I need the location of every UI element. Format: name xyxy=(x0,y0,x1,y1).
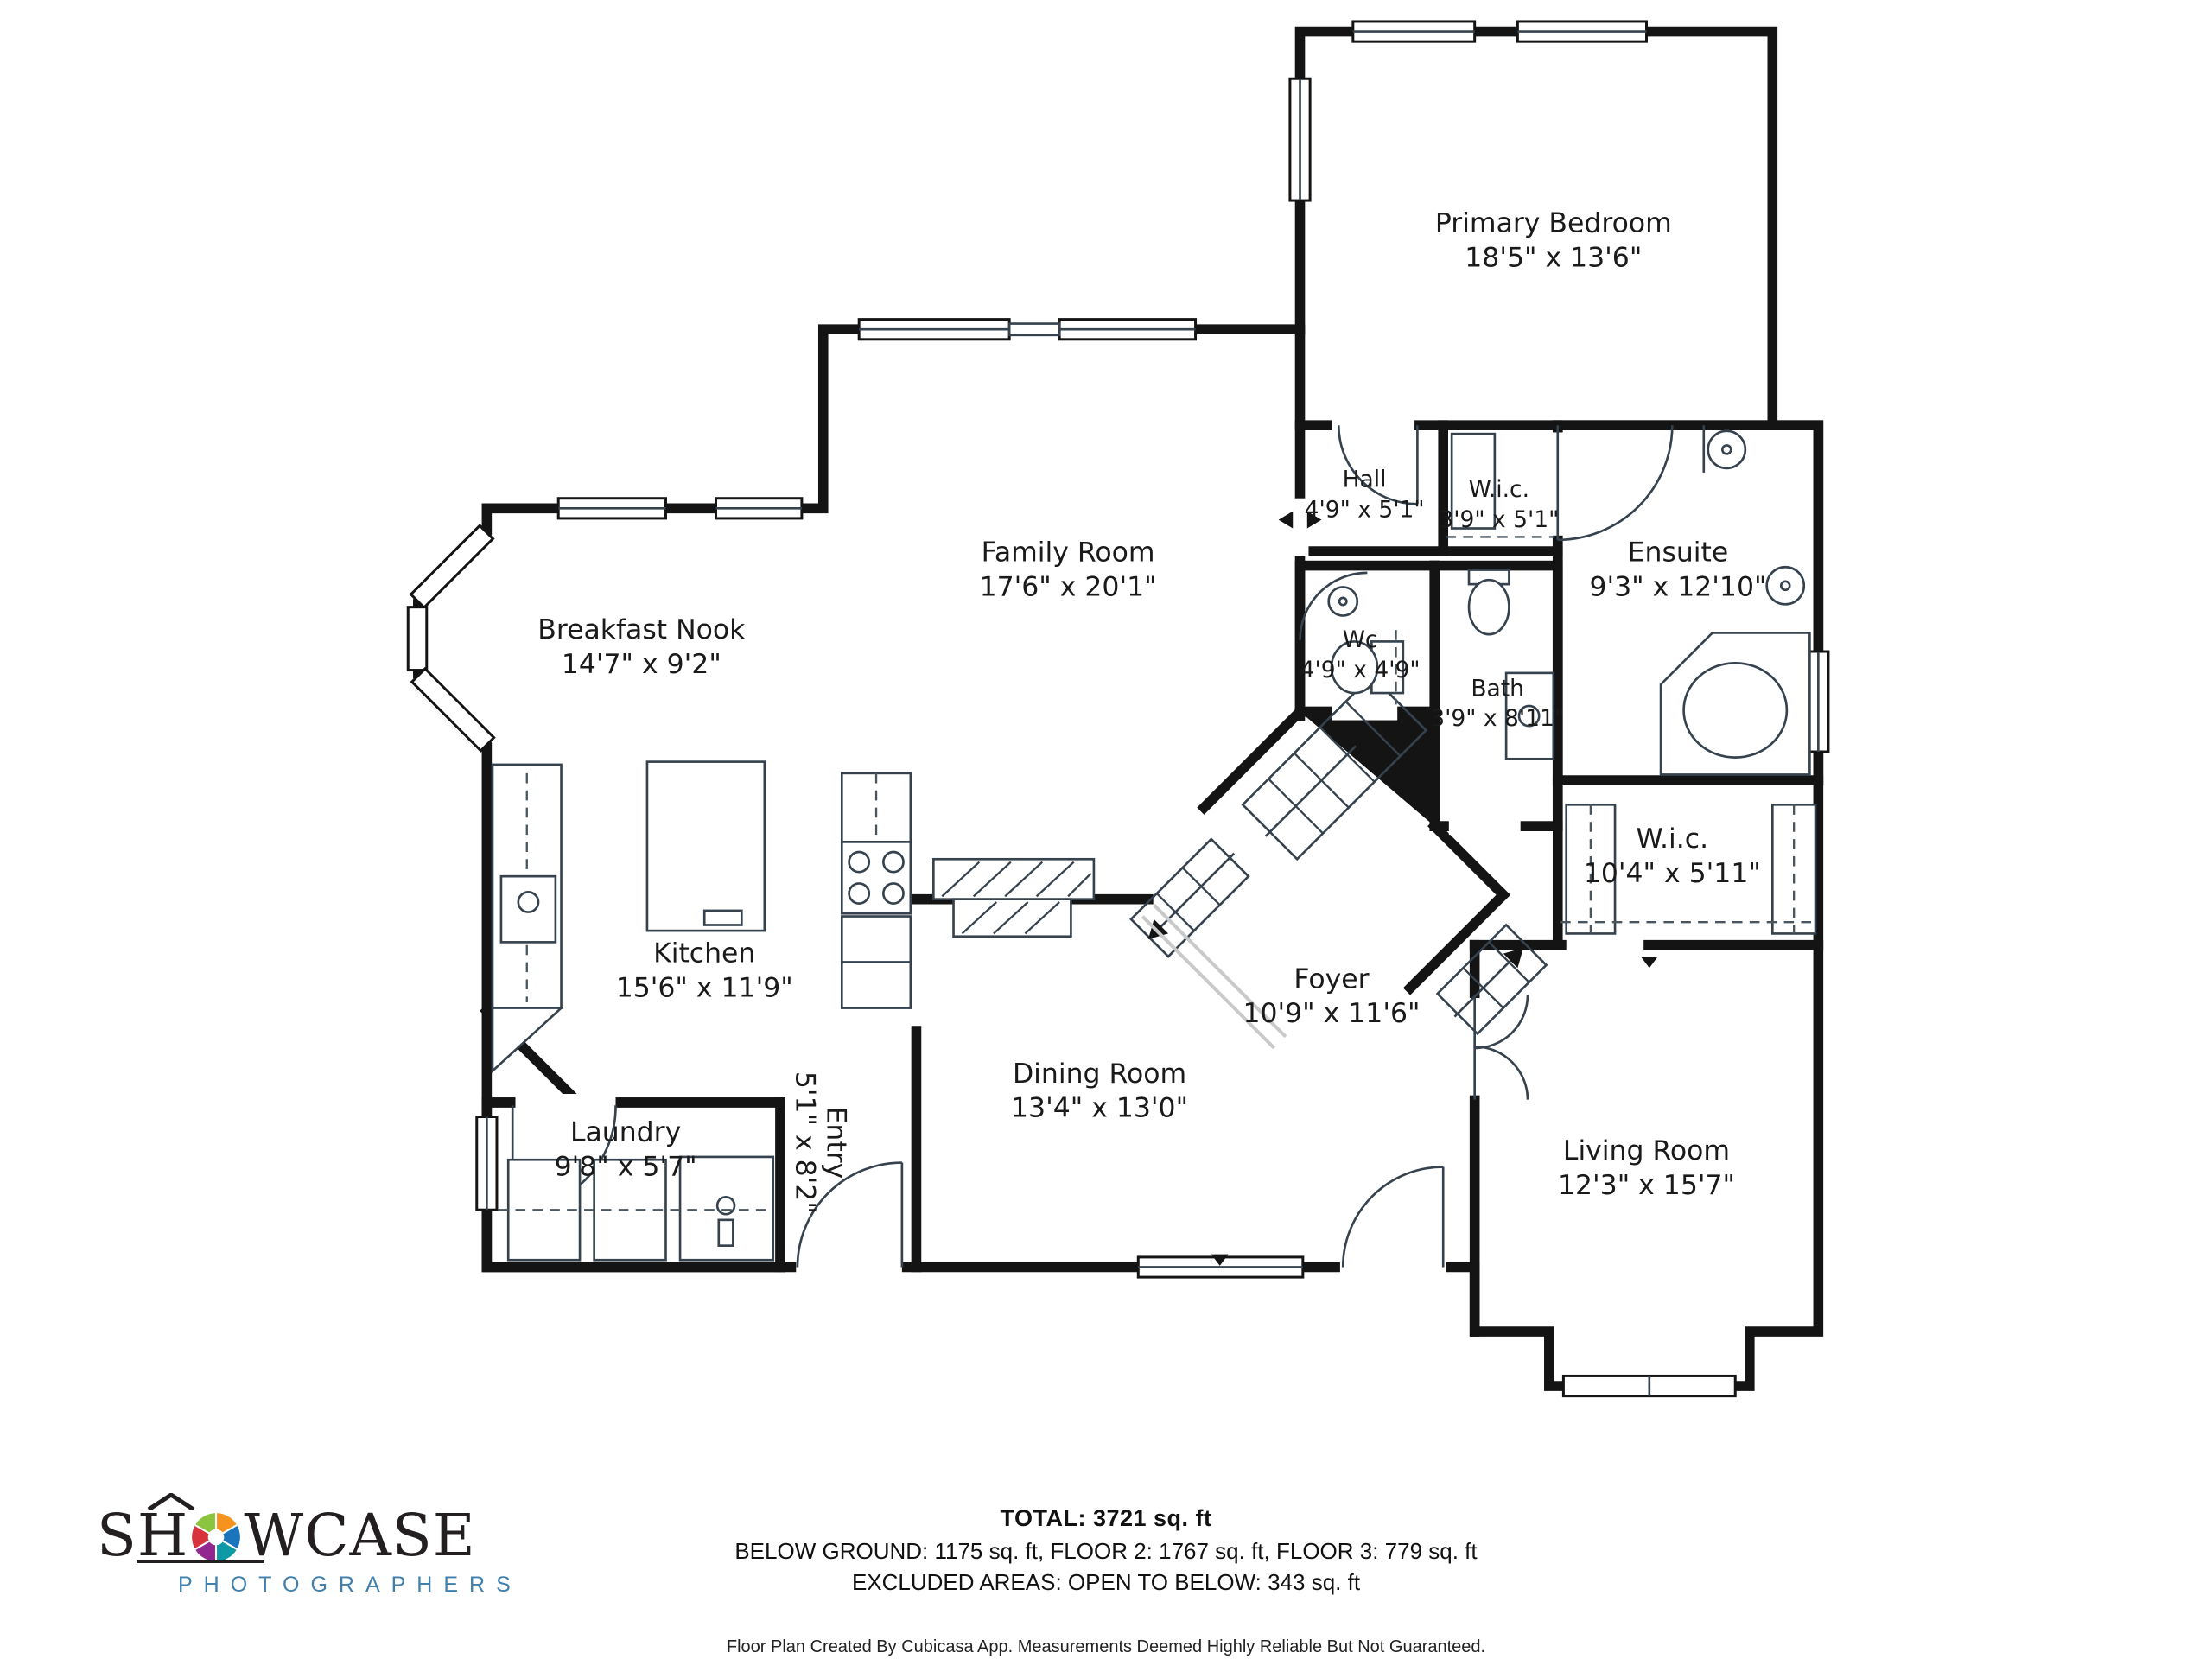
primary-bedroom-window xyxy=(1290,79,1310,200)
foyer-door xyxy=(1343,1167,1443,1268)
room-label-entry-group: Entry 5'1" x 8'2" xyxy=(789,1071,851,1214)
room-label-bath: Bath xyxy=(1471,675,1524,702)
bay-window xyxy=(411,525,493,607)
room-dims-primary-bedroom: 18'5" x 13'6" xyxy=(1465,242,1642,273)
family-room-window xyxy=(859,320,1009,340)
room-dims-living-room: 12'3" x 15'7" xyxy=(1558,1170,1735,1201)
excluded-areas-text: EXCLUDED AREAS: OPEN TO BELOW: 343 sq. f… xyxy=(0,1569,2212,1596)
sink-icon xyxy=(1329,587,1357,615)
room-dims-hall: 4'9" x 5'1" xyxy=(1305,496,1425,523)
disclaimer-text: Floor Plan Created By Cubicasa App. Meas… xyxy=(0,1637,2212,1657)
room-dims-entry: 5'1" x 8'2" xyxy=(789,1071,820,1214)
room-label-laundry: Laundry xyxy=(570,1117,681,1148)
floor-plan: Primary Bedroom 18'5" x 13'6" Hall 4'9" … xyxy=(0,0,2212,1503)
room-label-family-room: Family Room xyxy=(982,537,1155,569)
ensuite-door xyxy=(1558,425,1673,540)
room-dims-wic-large: 10'4" x 5'11" xyxy=(1584,858,1761,889)
room-dims-ensuite: 9'3" x 12'10" xyxy=(1589,571,1766,602)
sill xyxy=(1009,324,1059,335)
room-label-entry: Entry xyxy=(821,1106,852,1179)
sink-icon xyxy=(501,876,556,942)
toilet-icon xyxy=(1469,570,1509,635)
room-dims-family-room: 17'6" x 20'1" xyxy=(980,571,1157,602)
room-dims-laundry: 9'8" x 5'7" xyxy=(555,1151,697,1182)
floor-areas-text: BELOW GROUND: 1175 sq. ft, FLOOR 2: 1767… xyxy=(0,1538,2212,1565)
kitchen-counter xyxy=(493,765,562,1071)
laundry-window xyxy=(477,1117,497,1211)
primary-bedroom-window xyxy=(1517,22,1646,41)
primary-bedroom-window xyxy=(1353,22,1475,41)
fridge-icon xyxy=(842,917,911,1008)
bay-window xyxy=(412,669,494,751)
footer: TOTAL: 3721 sq. ft BELOW GROUND: 1175 sq… xyxy=(0,1505,2212,1657)
room-label-ensuite: Ensuite xyxy=(1628,537,1729,569)
living-room-bay-window xyxy=(1563,1376,1735,1395)
room-dims-dining-room: 13'4" x 13'0" xyxy=(1011,1093,1188,1124)
room-label-wic-small: W.i.c. xyxy=(1469,476,1529,503)
bay-window xyxy=(408,607,427,671)
room-label-foyer: Foyer xyxy=(1294,963,1369,995)
room-dims-breakfast-nook: 14'7" x 9'2" xyxy=(562,649,721,680)
room-dims-wic-small: 3'9" x 5'1" xyxy=(1439,506,1559,533)
room-label-hall: Hall xyxy=(1343,466,1387,493)
breakfast-nook-window xyxy=(715,499,801,518)
bathtub-icon xyxy=(1661,632,1809,774)
family-room-window xyxy=(1059,320,1195,340)
cooktop-icon xyxy=(842,773,911,913)
breakfast-nook-window xyxy=(558,499,665,518)
room-label-wic-large: W.i.c. xyxy=(1637,823,1709,855)
room-label-living-room: Living Room xyxy=(1563,1135,1730,1166)
room-dims-foyer: 10'9" x 11'6" xyxy=(1243,998,1420,1029)
room-label-breakfast-nook: Breakfast Nook xyxy=(537,614,746,645)
kitchen-island xyxy=(647,762,765,931)
room-label-dining-room: Dining Room xyxy=(1013,1058,1186,1090)
floor-plan-svg: Primary Bedroom 18'5" x 13'6" Hall 4'9" … xyxy=(0,0,2212,1503)
room-label-wc: Wc xyxy=(1343,626,1378,653)
ensuite-window xyxy=(1808,652,1828,752)
room-label-kitchen: Kitchen xyxy=(653,938,755,969)
room-label-primary-bedroom: Primary Bedroom xyxy=(1435,208,1672,239)
room-dims-kitchen: 15'6" x 11'9" xyxy=(616,972,793,1003)
total-area-text: TOTAL: 3721 sq. ft xyxy=(0,1505,2212,1532)
fireplace-icon xyxy=(933,859,1286,1048)
room-dims-bath: 3'9" x 8'11" xyxy=(1430,705,1565,732)
room-dims-wc: 4'9" x 4'9" xyxy=(1300,657,1421,683)
